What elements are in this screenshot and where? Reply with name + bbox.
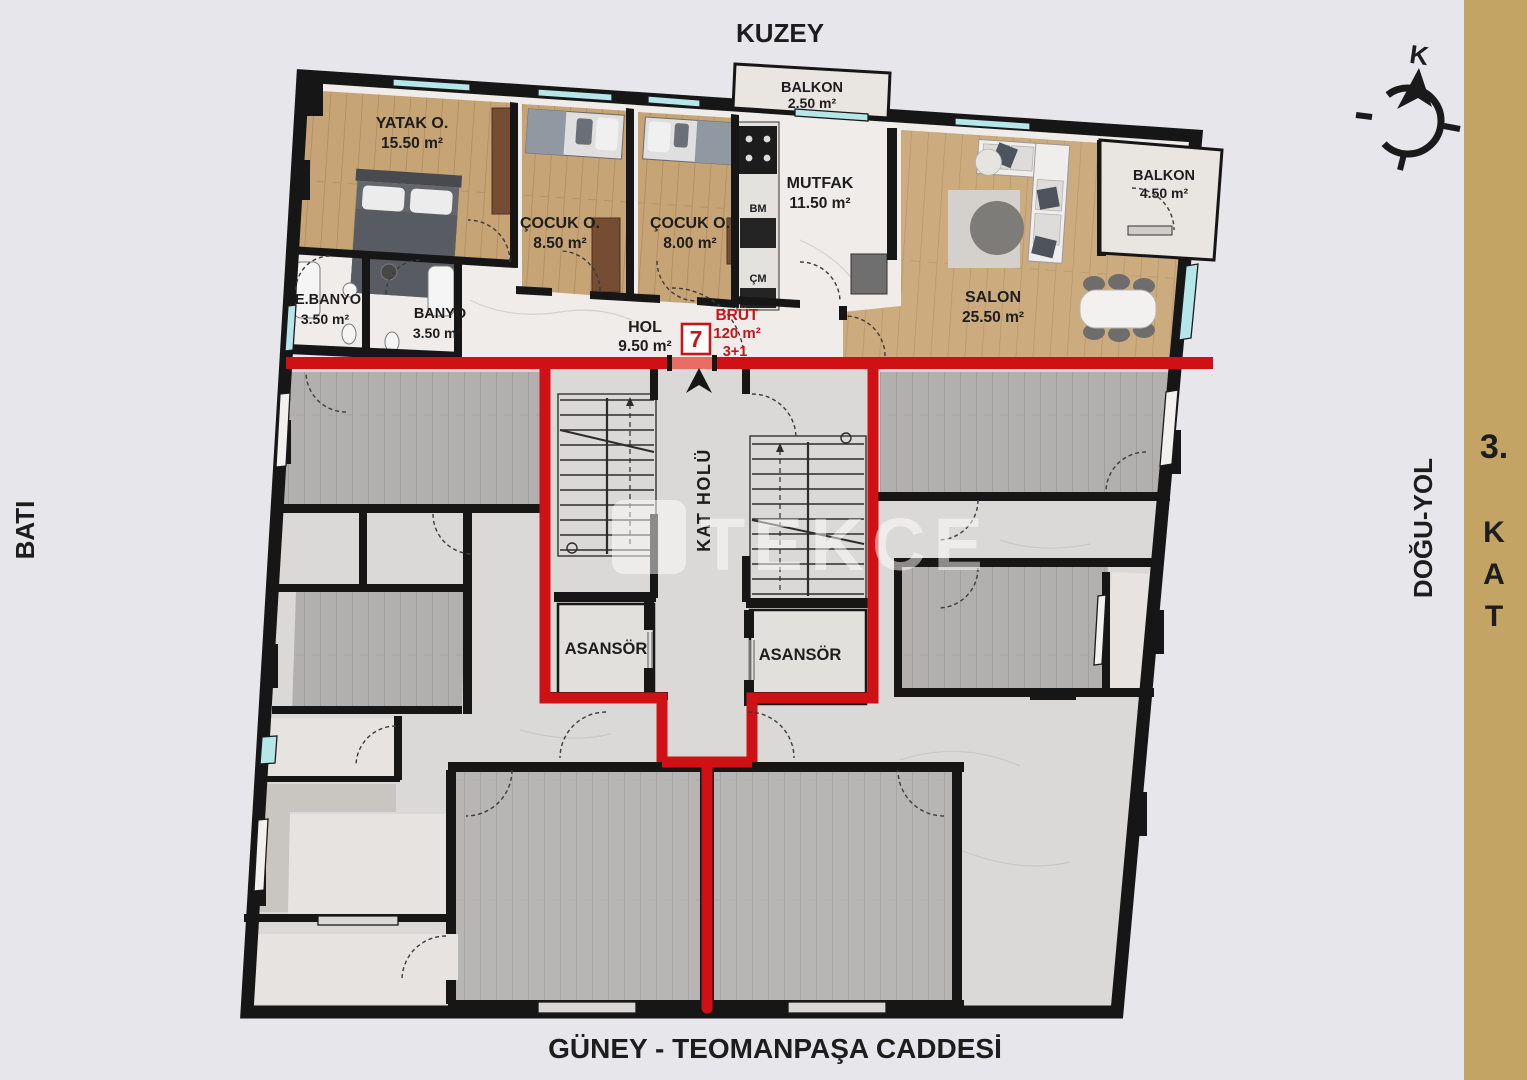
room-lower-left-marble	[288, 814, 446, 916]
fridge	[851, 254, 887, 294]
label-south-street: GÜNEY - TEOMANPAŞA CADDESİ	[548, 1033, 1002, 1064]
label-banyo-area: 3.50 m²	[413, 325, 462, 341]
compass-tick-west	[1356, 115, 1372, 117]
compass-tick-east	[1444, 126, 1460, 129]
watermark-logo-icon	[612, 500, 686, 574]
label-mutfak-name: MUTFAK	[787, 175, 854, 192]
bed-single-2	[643, 117, 738, 165]
room-lower-left-small	[262, 718, 398, 778]
compass-tick-south	[1400, 154, 1404, 170]
label-north: KUZEY	[736, 18, 824, 48]
floor-number: 3.	[1480, 428, 1508, 466]
label-salon-name: SALON	[965, 289, 1021, 306]
room-bottom-center-left	[456, 770, 700, 1004]
door-gap-bottom-left	[446, 934, 458, 980]
unit-gross-area: 120 m²	[713, 325, 761, 342]
unit-room-layout: 3+1	[723, 344, 748, 360]
floor-letter-t: T	[1485, 600, 1503, 633]
label-salon-area: 25.50 m²	[962, 309, 1024, 326]
floor-plan-svg: KUZEY GÜNEY - TEOMANPAŞA CADDESİ BATI DO…	[0, 0, 1527, 1080]
watermark: TEKCE	[612, 500, 991, 586]
entrance-jamb-left	[667, 355, 672, 371]
label-cocuk2-name: ÇOCUK O.	[650, 215, 730, 232]
label-balkon-north-area: 2.50 m²	[788, 95, 837, 111]
label-balkon-east-name: BALKON	[1133, 168, 1195, 184]
unit-number: 7	[690, 326, 703, 352]
label-asansor-left: ASANSÖR	[565, 639, 648, 658]
label-bm: BM	[749, 203, 766, 215]
label-asansor-right: ASANSÖR	[759, 645, 842, 664]
label-ebanyo-name: E.BANYO	[295, 292, 361, 308]
room-lower-left-big	[280, 372, 543, 506]
floor-letter-k: K	[1483, 516, 1505, 549]
entrance-jamb-right	[712, 355, 717, 371]
unit-gross-label: BRÜT	[715, 307, 759, 324]
label-balkon-east-area: 4.50 m²	[1140, 185, 1189, 201]
floor-letter-a: A	[1483, 558, 1505, 591]
label-hol-area: 9.50 m²	[618, 338, 671, 355]
label-yatak-name: YATAK O.	[376, 115, 449, 132]
bed-single-1	[526, 109, 625, 159]
label-cm: ÇM	[749, 273, 766, 285]
floor-plan-page: KUZEY GÜNEY - TEOMANPAŞA CADDESİ BATI DO…	[0, 0, 1527, 1080]
label-mutfak-area: 11.50 m²	[789, 195, 850, 212]
label-west: BATI	[10, 501, 40, 560]
label-hol-name: HOL	[628, 319, 662, 336]
label-cocuk1-area: 8.50 m²	[533, 235, 586, 252]
label-cocuk1-name: ÇOCUK O.	[520, 215, 600, 232]
label-east: DOĞU-YOL	[1408, 458, 1438, 598]
room-lower-right-big	[880, 372, 1176, 494]
label-cocuk2-area: 8.00 m²	[663, 235, 716, 252]
dining-table	[1080, 274, 1156, 342]
room-bottom-center-right	[714, 770, 952, 1004]
label-balkon-north-name: BALKON	[781, 80, 843, 96]
label-banyo-name: BANYO	[414, 306, 466, 322]
rug-round	[948, 190, 1024, 268]
room-bottom-left-marble	[246, 934, 446, 1004]
watermark-text: TEKCE	[700, 503, 991, 586]
unit7-entrance-door	[670, 357, 714, 369]
room-lower-left-mid	[292, 592, 465, 712]
label-ebanyo-area: 3.50 m²	[301, 311, 350, 327]
label-yatak-area: 15.50 m²	[381, 135, 443, 152]
